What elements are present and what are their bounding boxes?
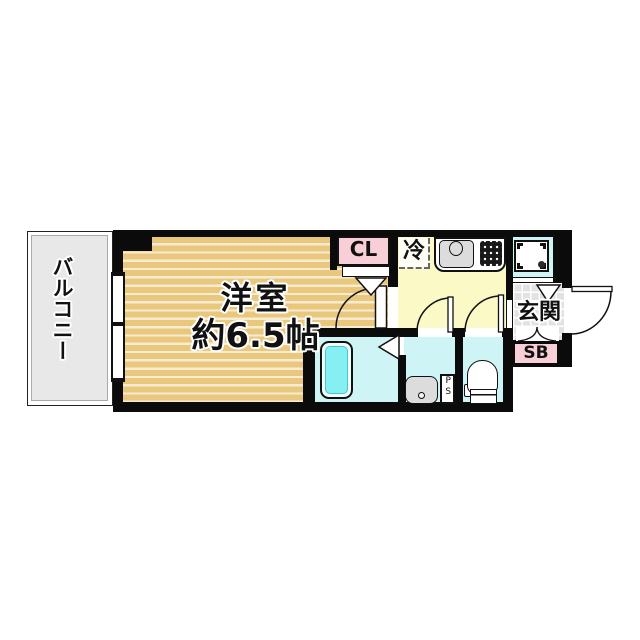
main-room-name-label: 洋室 [123,282,388,316]
window-tick-bottom [113,378,123,382]
faucet-icon [449,241,463,256]
basin-drain-icon [418,392,425,399]
shoebox-label: SB [523,343,548,363]
front-door-arc [572,291,611,334]
pan-corner [517,263,523,269]
wall-right-outer-lower [562,333,572,367]
pan-corner [540,243,546,249]
window-tick-mid [113,322,123,326]
closet-label: CL [350,237,377,261]
wall-mid-2 [452,328,465,337]
wall-left-upper [113,237,123,274]
drain-icon [538,261,545,268]
shoebox-box: SB [511,340,562,367]
balcony-label: バルコニー [51,256,73,391]
floorplan-canvas: CL SB PS [0,0,640,640]
main-room-size-label: 約6.5帖 [123,319,388,355]
entrance-label: 玄関 [510,301,568,324]
wall-washroom-toilet [455,337,463,403]
shoebox-inner: SB [515,344,557,363]
pipe-space-label: PS [443,376,452,398]
wall-right-outer-upper [562,230,572,288]
window-tick-top [113,272,123,276]
toilet-tank [470,389,497,404]
pipe-space-box: PS [440,374,455,404]
stove-icon [480,241,502,266]
closet-folding-door [342,266,390,277]
pan-corner [517,243,523,249]
front-door-leaf [572,287,612,292]
washing-machine-pan-icon [514,240,549,272]
closet-box: CL [337,236,390,266]
fridge-label: 冷 [398,240,430,263]
wall-laundry-right [553,237,562,283]
wall-entrance-left-upper [506,237,513,300]
washbasin-icon [405,376,438,404]
wall-closet-stub [330,236,337,270]
shoebox-door-strip [516,326,559,341]
